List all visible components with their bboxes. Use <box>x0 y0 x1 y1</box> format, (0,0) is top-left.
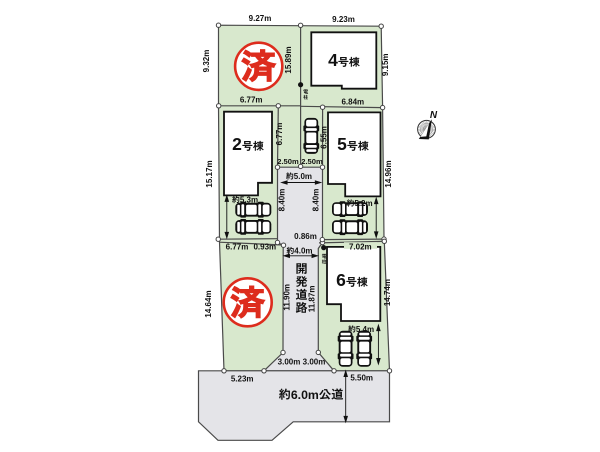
svg-text:2: 2 <box>232 134 242 154</box>
svg-text:6.77m: 6.77m <box>240 96 263 105</box>
svg-text:4.0m: 4.0m <box>294 247 312 256</box>
svg-text:9.27m: 9.27m <box>249 14 272 23</box>
svg-text:6.55m: 6.55m <box>320 126 329 149</box>
svg-text:6.0m: 6.0m <box>291 388 319 402</box>
svg-text:6.84m: 6.84m <box>341 98 364 107</box>
svg-text:14.96m: 14.96m <box>384 160 393 187</box>
svg-text:5.2m: 5.2m <box>354 199 372 208</box>
svg-text:0.93m: 0.93m <box>253 243 276 252</box>
svg-text:5: 5 <box>337 134 347 154</box>
svg-text:N: N <box>430 110 438 121</box>
svg-text:6: 6 <box>336 270 346 290</box>
svg-text:0.86m: 0.86m <box>294 232 317 241</box>
svg-text:15.17m: 15.17m <box>205 160 214 187</box>
svg-text:11.87m: 11.87m <box>307 286 316 313</box>
svg-text:5.50m: 5.50m <box>350 374 373 383</box>
svg-text:14.64m: 14.64m <box>204 290 213 317</box>
svg-text:2.50m: 2.50m <box>301 157 323 166</box>
svg-text:4: 4 <box>328 50 338 70</box>
svg-text:8.40m: 8.40m <box>311 189 320 212</box>
svg-text:7.02m: 7.02m <box>349 243 372 252</box>
svg-text:14.74m: 14.74m <box>383 279 392 306</box>
svg-text:6.77m: 6.77m <box>226 243 249 252</box>
svg-text:8.40m: 8.40m <box>278 189 287 212</box>
svg-text:5.0m: 5.0m <box>294 172 312 181</box>
svg-text:3.00m: 3.00m <box>278 358 301 367</box>
svg-text:15.89m: 15.89m <box>284 46 293 73</box>
svg-text:11.90m: 11.90m <box>283 284 292 311</box>
svg-text:5.3m: 5.3m <box>240 196 258 205</box>
svg-text:5.4m: 5.4m <box>356 325 374 334</box>
svg-text:5.23m: 5.23m <box>231 375 254 384</box>
svg-text:9.15m: 9.15m <box>381 53 390 76</box>
svg-text:3.00m: 3.00m <box>303 358 326 367</box>
svg-text:9.23m: 9.23m <box>332 15 355 24</box>
svg-text:9.32m: 9.32m <box>202 50 211 73</box>
svg-text:2.50m: 2.50m <box>277 157 299 166</box>
svg-text:6.77m: 6.77m <box>275 123 284 146</box>
